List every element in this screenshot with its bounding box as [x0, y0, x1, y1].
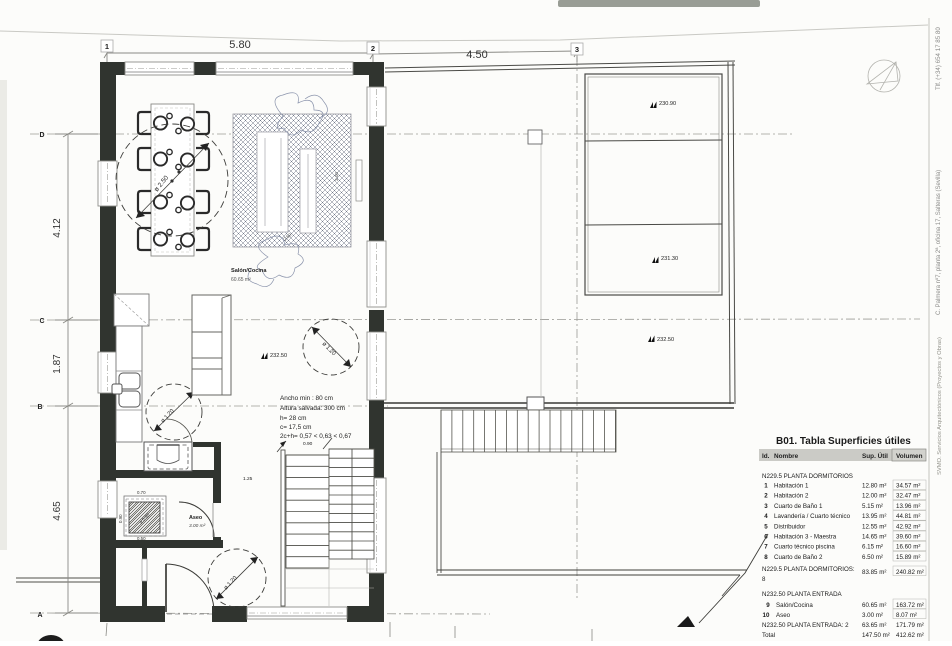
svg-text:1.25: 1.25 — [243, 476, 253, 482]
svg-text:44.81 m²: 44.81 m² — [896, 513, 920, 520]
svg-text:6.50 m²: 6.50 m² — [862, 554, 883, 561]
svg-text:Ancho min : 80 cm: Ancho min : 80 cm — [280, 395, 333, 402]
svg-text:Id.: Id. — [762, 453, 770, 460]
svg-text:C. Palmera nº7, planta 2ª, ofi: C. Palmera nº7, planta 2ª, oficina 17, S… — [935, 170, 942, 315]
svg-text:Habitación 3 - Maestra: Habitación 3 - Maestra — [774, 534, 837, 541]
svg-text:8.07 m²: 8.07 m² — [896, 612, 917, 619]
svg-text:Cuarto de Baño 1: Cuarto de Baño 1 — [774, 503, 823, 510]
svg-text:8: 8 — [762, 576, 766, 583]
svg-text:B: B — [37, 404, 42, 411]
svg-text:15.89 m²: 15.89 m² — [896, 554, 920, 561]
svg-text:Altura salvada: 300 cm: Altura salvada: 300 cm — [280, 405, 345, 412]
svg-text:1: 1 — [105, 42, 109, 51]
svg-text:2c+h= 0,57 < 0,63 < 0,67: 2c+h= 0,57 < 0,63 < 0,67 — [280, 433, 352, 440]
svg-text:4: 4 — [764, 513, 768, 520]
svg-text:231.30: 231.30 — [661, 256, 678, 262]
svg-text:1.87: 1.87 — [52, 354, 63, 374]
svg-text:83.85 m²: 83.85 m² — [862, 569, 886, 576]
svg-text:Nombre: Nombre — [774, 453, 799, 460]
svg-text:N232.50 PLANTA ENTRADA: N232.50 PLANTA ENTRADA — [762, 591, 843, 598]
svg-text:2: 2 — [764, 493, 768, 500]
svg-text:12.80 m²: 12.80 m² — [862, 483, 886, 490]
svg-text:Habitación 1: Habitación 1 — [774, 483, 809, 490]
svg-text:Habitación 2: Habitación 2 — [774, 493, 809, 500]
svg-text:SVMO. Servicios Arquitectónico: SVMO. Servicios Arquitectónicos (Proyect… — [937, 337, 943, 475]
svg-text:N229.5 PLANTA DORMITORIOS:: N229.5 PLANTA DORMITORIOS: — [762, 566, 855, 573]
svg-text:4.50: 4.50 — [466, 49, 487, 61]
svg-text:232.50: 232.50 — [657, 337, 674, 343]
svg-text:Aseo: Aseo — [189, 515, 203, 521]
svg-text:5.80: 5.80 — [229, 39, 250, 51]
svg-text:39.60 m²: 39.60 m² — [896, 534, 920, 541]
svg-text:2: 2 — [371, 44, 375, 53]
svg-text:Aseo: Aseo — [776, 612, 791, 619]
svg-text:60.65 m²: 60.65 m² — [862, 602, 886, 609]
svg-text:3: 3 — [764, 503, 768, 510]
svg-text:c= 17,5 cm: c= 17,5 cm — [280, 424, 311, 431]
svg-text:9: 9 — [766, 602, 770, 609]
svg-text:0.90: 0.90 — [118, 514, 123, 523]
svg-text:Cuarto de Baño 2: Cuarto de Baño 2 — [774, 554, 823, 561]
svg-text:3: 3 — [575, 45, 579, 54]
svg-text:12.55 m²: 12.55 m² — [862, 523, 886, 530]
svg-text:A: A — [37, 612, 42, 619]
svg-text:14.65 m²: 14.65 m² — [862, 534, 886, 541]
svg-text:Salón/Cocina: Salón/Cocina — [776, 602, 813, 609]
svg-text:Salón/Cocina: Salón/Cocina — [231, 268, 267, 274]
svg-text:Cuarto técnico piscina: Cuarto técnico piscina — [774, 544, 835, 551]
svg-text:5: 5 — [764, 523, 768, 530]
svg-text:0.70: 0.70 — [137, 490, 146, 495]
svg-text:0.90: 0.90 — [303, 441, 313, 447]
svg-text:C: C — [39, 318, 44, 325]
svg-text:D: D — [39, 132, 44, 139]
svg-text:Tlf. (+34) 654 17 85 80: Tlf. (+34) 654 17 85 80 — [935, 27, 942, 90]
svg-text:10: 10 — [763, 612, 770, 619]
svg-text:N229.5 PLANTA DORMITORIOS: N229.5 PLANTA DORMITORIOS — [762, 473, 853, 480]
svg-text:163.72 m²: 163.72 m² — [896, 602, 924, 609]
svg-text:42.92 m²: 42.92 m² — [896, 523, 920, 530]
svg-text:16.60 m²: 16.60 m² — [896, 544, 920, 551]
svg-text:4.65: 4.65 — [52, 501, 63, 521]
svg-text:32.47 m²: 32.47 m² — [896, 493, 920, 500]
svg-text:12.00 m²: 12.00 m² — [862, 493, 886, 500]
svg-text:8: 8 — [764, 554, 768, 561]
svg-text:4.12: 4.12 — [52, 218, 63, 238]
svg-text:240.82 m²: 240.82 m² — [896, 569, 924, 576]
svg-text:3.00: 3.00 — [334, 172, 339, 181]
svg-text:63.65 m²: 63.65 m² — [862, 622, 886, 629]
svg-text:B01. Tabla Superficies útiles: B01. Tabla Superficies útiles — [776, 436, 911, 447]
svg-text:3.00 m²: 3.00 m² — [862, 612, 883, 619]
svg-text:Distribuidor: Distribuidor — [774, 523, 805, 530]
svg-text:Lavandería / Cuarto técnico: Lavandería / Cuarto técnico — [774, 513, 851, 520]
svg-text:171.79 m²: 171.79 m² — [896, 622, 924, 629]
svg-text:6.15 m²: 6.15 m² — [862, 544, 883, 551]
svg-text:1: 1 — [764, 483, 768, 490]
svg-text:Volumen: Volumen — [896, 453, 923, 460]
svg-text:230.90: 230.90 — [659, 101, 676, 107]
svg-text:Total: Total — [762, 632, 775, 639]
svg-text:N232.50 PLANTA ENTRADA: 2: N232.50 PLANTA ENTRADA: 2 — [762, 622, 849, 629]
svg-text:7: 7 — [764, 544, 768, 551]
svg-text:232.50: 232.50 — [270, 353, 287, 359]
svg-text:5.15 m²: 5.15 m² — [862, 503, 883, 510]
svg-text:147.50 m²: 147.50 m² — [862, 632, 890, 639]
svg-text:60.65 m²: 60.65 m² — [231, 277, 251, 283]
svg-text:13.95 m²: 13.95 m² — [862, 513, 886, 520]
svg-text:34.57 m²: 34.57 m² — [896, 483, 920, 490]
svg-text:h= 28 cm: h= 28 cm — [280, 415, 306, 422]
svg-text:Sup. Útil: Sup. Útil — [862, 451, 888, 460]
svg-text:13.96 m²: 13.96 m² — [896, 503, 920, 510]
svg-text:3.00 m²: 3.00 m² — [189, 523, 206, 529]
svg-text:412.62 m²: 412.62 m² — [896, 632, 924, 639]
svg-text:0.50: 0.50 — [137, 536, 146, 541]
